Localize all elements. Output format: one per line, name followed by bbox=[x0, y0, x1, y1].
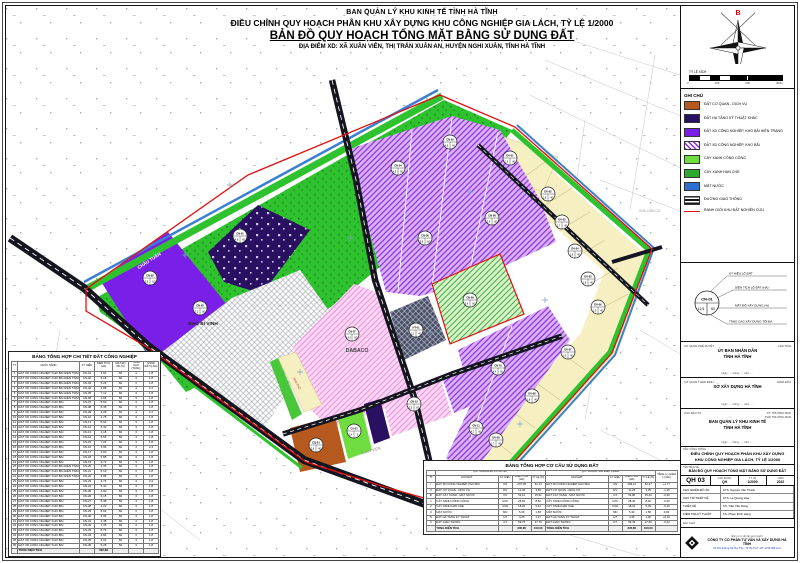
map-label: DABACO bbox=[346, 348, 369, 354]
table-row: 30ĐẤT XD CÔNG NGHIỆP, KHO BÃICN-305,0560… bbox=[12, 514, 159, 519]
lot-circle: CN-054,960 bbox=[443, 135, 457, 149]
lot-circle: CN-106,460 bbox=[491, 361, 505, 375]
staff-rows: CHỦ NHIỆM ĐỒ ÁNKTS. Nguyễn Văn Thành CHỦ… bbox=[681, 486, 794, 519]
lot-circle: CN-046,560 bbox=[391, 161, 405, 175]
svg-text:DV-05: DV-05 bbox=[584, 274, 592, 278]
svg-text:KÝ HIỆU LÔ ĐẤT: KÝ HIỆU LÔ ĐẤT bbox=[729, 271, 753, 276]
legend-items: ĐẤT CƠ QUAN - DỊCH VỤĐẤT HẠ TẦNG KỸ THUẬ… bbox=[684, 101, 791, 214]
lot-circle: DV-081,840 bbox=[525, 389, 539, 403]
table-row: 31ĐẤT XD CÔNG NGHIỆP, KHO BÃICN-314,4860… bbox=[12, 519, 159, 524]
table-row: 15ĐẤT XD CÔNG NGHIỆP, KHO BÃICN-157,2460… bbox=[12, 440, 159, 445]
table-row: 24ĐẤT XD CÔNG NGHIỆP, KHO BÃICN-245,4260… bbox=[12, 485, 159, 490]
location-line: ĐỊA ĐIỂM XD: XÃ XUÂN VIÊN, THỊ TRẤN XUÂN… bbox=[166, 44, 678, 50]
table-row: 9ĐẤT XD CÔNG NGHIỆP, KHO BÃICN-093,28604… bbox=[12, 411, 159, 416]
lot-circle: CN-065,860 bbox=[418, 231, 432, 245]
lot-circle: DV-091,740 bbox=[489, 433, 503, 447]
table-header-row: TTCHỨC NĂNG KÝ HIỆUDIỆN TÍCH (HA) MẬT ĐỘ… bbox=[12, 362, 159, 372]
lot-circle: DV-051,640 bbox=[581, 272, 595, 286]
svg-text:CN-04: CN-04 bbox=[394, 163, 402, 167]
lot-circle: DV-021,840 bbox=[541, 187, 555, 201]
lot-circle: CQ-012,840 bbox=[309, 438, 323, 452]
svg-text:CN-09: CN-09 bbox=[466, 295, 474, 299]
table-row: 8ĐẤT XD CÔNG NGHIỆP, KHO BÃICN-086,45603… bbox=[12, 406, 159, 411]
table-row: 27ĐẤT XD CÔNG NGHIỆP, KHO BÃICN-275,3860… bbox=[12, 499, 159, 504]
table-row: 7ĐẤT XD CÔNG NGHIỆP, KHO BÃICN-075,60603… bbox=[12, 401, 159, 406]
lot-circle: CN-025,660 bbox=[143, 271, 157, 285]
svg-text:CN-08: CN-08 bbox=[488, 213, 496, 217]
legend-swatch-icon bbox=[684, 128, 700, 137]
svg-text:DV-01: DV-01 bbox=[506, 153, 514, 157]
page-title: BẢN ĐỒ QUY HOẠCH TỔNG MẶT BẰNG SỬ DỤNG Đ… bbox=[166, 30, 678, 42]
svg-text:DV-02: DV-02 bbox=[544, 189, 552, 193]
svg-text:DV-04: DV-04 bbox=[571, 246, 579, 250]
svg-text:CN-07: CN-07 bbox=[348, 329, 356, 333]
legend-panel: GHI CHÚ ĐẤT CƠ QUAN - DỊCH VỤĐẤT HẠ TẦNG… bbox=[681, 89, 794, 264]
org-title: BAN QUẢN LÝ KHU KINH TẾ TỈNH HÀ TĨNH bbox=[166, 9, 678, 16]
svg-text:14,6: 14,6 bbox=[346, 337, 351, 340]
table-row: TỔNG DIỆN TÍCH192,83 bbox=[12, 549, 159, 554]
drawing-name: BẢN ĐỒ QUY HOẠCH TỔNG MẶT BẰNG SỬ DỤNG Đ… bbox=[681, 469, 794, 476]
legend-swatch-icon bbox=[684, 114, 700, 123]
lot-symbol-diagram: CN-01 12,5 60 KÝ HIỆU LÔ ĐẤT DIỆN TÍCH L… bbox=[681, 263, 791, 339]
svg-text:DV-06: DV-06 bbox=[594, 302, 602, 306]
company-logo-icon bbox=[684, 535, 700, 551]
company-name: CÔNG TY CỔ PHẦN TƯ VẤN VÀ XÂY DỰNG HÀ TĨ… bbox=[703, 538, 791, 546]
lot-circle: DV-041,840 bbox=[568, 244, 582, 258]
table-row: 17ĐẤT XD CÔNG NGHIỆP, KHO BÃICN-174,6060… bbox=[12, 450, 159, 455]
legend-swatch-icon bbox=[684, 211, 700, 212]
svg-text:CN-06: CN-06 bbox=[421, 233, 429, 237]
svg-text:B: B bbox=[735, 10, 740, 17]
lot-circle: CN-083,660 bbox=[485, 211, 499, 225]
approval-block-soxd: CƠ QUAN THẨM ĐỊNHGIÁM ĐỐC SỞ XÂY DỰNG HÀ… bbox=[681, 378, 794, 410]
legend-item: CÂY XANH HẠN CHẾ bbox=[684, 169, 791, 178]
svg-text:DV-07: DV-07 bbox=[564, 347, 572, 351]
table-row: 20ĐẤT XD CÔNG NGHIỆP, KHO BÃI HIỆN TRẠNG… bbox=[12, 465, 159, 470]
legend-item: ĐƯỜNG GIAO THÔNG bbox=[684, 196, 791, 205]
project-title: ĐIỀU CHỈNH QUY HOẠCH PHÂN KHU XÂY DỰNG K… bbox=[166, 18, 678, 28]
svg-text:DIỆN TÍCH LÔ ĐẤT (HA): DIỆN TÍCH LÔ ĐẤT (HA) bbox=[735, 285, 769, 290]
company-address: Số 181 đường Hà Huy Tập - TP Hà Tĩnh - Đ… bbox=[703, 547, 791, 550]
legend-swatch-icon bbox=[684, 155, 700, 164]
lot-circle: CN-095,460 bbox=[463, 293, 477, 307]
lot-circle: CN-114,260 bbox=[469, 421, 483, 435]
table-row: 10ĐẤT XD CÔNG NGHIỆP, KHO BÃICN-104,7560… bbox=[12, 416, 159, 421]
table-row: 16ĐẤT XD CÔNG NGHIỆP, KHO BÃICN-163,9660… bbox=[12, 445, 159, 450]
legend-swatch-icon bbox=[684, 141, 700, 150]
legend-item: ĐẤT XD CÔNG NGHIỆP, KHO BÃI HIỆN TRẠNG bbox=[684, 128, 791, 137]
legend-swatch-icon bbox=[684, 101, 700, 110]
industrial-detail-table: BẢNG TỔNG HỢP CHI TIẾT ĐẤT CÔNG NGHIỆP T… bbox=[8, 351, 161, 557]
note-cell: GHI CHÚ: bbox=[681, 519, 794, 527]
table-row: 21ĐẤT XD CÔNG NGHIỆP, KHO BÃI HIỆN TRẠNG… bbox=[12, 470, 159, 475]
compass-panel: B TỶ LỆ XÍCH 0100 200400m bbox=[681, 6, 794, 89]
lot-circle: CN-014,860 bbox=[233, 229, 247, 243]
legend-title: GHI CHÚ bbox=[684, 93, 791, 98]
table-title: BẢNG TỔNG HỢP CHI TIẾT ĐẤT CÔNG NGHIỆP bbox=[11, 354, 158, 359]
table-row: 1ĐẤT XD CÔNG NGHIỆP, KHO BÃI HIỆN TRẠNGC… bbox=[12, 371, 159, 376]
lot-circle: DV-031,740 bbox=[555, 215, 569, 229]
svg-text:DV-09: DV-09 bbox=[492, 435, 500, 439]
approval-block-ubnd: CƠ QUAN PHÊ DUYỆTCHỦ TỊCH ỦY BAN NHÂN DÂ… bbox=[681, 342, 794, 377]
table-row: 13ĐẤT XD CÔNG NGHIỆP, KHO BÃICN-134,1860… bbox=[12, 430, 159, 435]
svg-text:CN-05: CN-05 bbox=[446, 137, 454, 141]
legend-swatch-icon bbox=[684, 182, 700, 191]
table-row: 22ĐẤT XD CÔNG NGHIỆP, KHO BÃI HIỆN TRẠNG… bbox=[12, 475, 159, 480]
legend-item-label: ĐẤT HẠ TẦNG KỸ THUẬT KHÁC bbox=[704, 117, 758, 121]
scale-ticks: 0100 200400m bbox=[687, 81, 783, 85]
table-row: 2ĐẤT XD CÔNG NGHIỆP, KHO BÃI HIỆN TRẠNGC… bbox=[12, 376, 159, 381]
legend-item-label: CÂY XANH HẠN CHẾ bbox=[704, 171, 739, 175]
svg-text:12,5: 12,5 bbox=[698, 307, 705, 311]
lot-circle: DV-011,640 bbox=[503, 151, 517, 165]
table-row: 34ĐẤT XD CÔNG NGHIỆP, KHO BÃICN-344,8460… bbox=[12, 534, 159, 539]
lot-circle: DV-071,940 bbox=[561, 345, 575, 359]
drawing-number: QH 03 bbox=[681, 476, 711, 485]
table-row: 25ĐẤT XD CÔNG NGHIỆP, KHO BÃICN-254,9060… bbox=[12, 490, 159, 495]
table-row: 14ĐẤT XD CÔNG NGHIỆP, KHO BÃICN-145,5560… bbox=[12, 435, 159, 440]
project-name-2: KHU CÔNG NGHIỆP GIA LÁCH, TỶ LỆ 1/2000 bbox=[681, 457, 794, 463]
svg-text:CN-02: CN-02 bbox=[146, 273, 154, 277]
legend-item: ĐẤT XD CÔNG NGHIỆP, KHO BÃI bbox=[684, 141, 791, 150]
legend-item: MẶT NƯỚC bbox=[684, 182, 791, 191]
table-row: 33ĐẤT XD CÔNG NGHIỆP, KHO BÃICN-335,7660… bbox=[12, 529, 159, 534]
svg-text:CN-01: CN-01 bbox=[236, 231, 244, 235]
lot-circle: CX-011,45 bbox=[347, 424, 361, 438]
lot-circle: CN-123,560 bbox=[407, 397, 421, 411]
table-row: 18ĐẤT XD CÔNG NGHIỆP, KHO BÃICN-185,8560… bbox=[12, 455, 159, 460]
scale-bar-label: TỶ LỆ XÍCH bbox=[689, 70, 794, 74]
compass-rose-icon: B bbox=[681, 6, 791, 64]
lot-circle: CN-0714,660 bbox=[345, 327, 359, 341]
svg-text:CN-10: CN-10 bbox=[494, 363, 502, 367]
legend-item-label: ĐẤT CƠ QUAN - DỊCH VỤ bbox=[704, 103, 747, 107]
title-block: TÊN CÔNG TRÌNH ĐIỀU CHỈNH QUY HOẠCH PHÂN… bbox=[681, 447, 794, 557]
svg-text:HT-01: HT-01 bbox=[412, 325, 420, 329]
landuse-structure-table: BẢNG TỔNG HỢP CƠ CẤU SỬ DỤNG ĐẤT QUY HOẠ… bbox=[423, 460, 681, 535]
title-column: B TỶ LỆ XÍCH 0100 200400m bbox=[680, 6, 794, 557]
legend-swatch-icon bbox=[684, 169, 700, 178]
table-row: 4ĐẤT XD CÔNG NGHIỆP, KHO BÃI HIỆN TRẠNGC… bbox=[12, 386, 159, 391]
legend-item: RANH GIỚI KHU ĐẤT NGHIÊN CỨU bbox=[684, 209, 791, 213]
lot-circle: HT-011,240 bbox=[409, 323, 423, 337]
legend-item: ĐẤT HẠ TẦNG KỸ THUẬT KHÁC bbox=[684, 114, 791, 123]
legend-swatch-icon bbox=[684, 196, 700, 205]
table-row: 11ĐẤT XD CÔNG NGHIỆP, KHO BÃICN-115,9260… bbox=[12, 421, 159, 426]
svg-text:TẦNG CAO XÂY DỰNG TỐI ĐA: TẦNG CAO XÂY DỰNG TỐI ĐA bbox=[729, 319, 772, 324]
table-row: 19ĐẤT XD CÔNG NGHIỆP, KHO BÃICN-196,7260… bbox=[12, 460, 159, 465]
table-row: 28ĐẤT XD CÔNG NGHIỆP, KHO BÃICN-284,2260… bbox=[12, 504, 159, 509]
approval-block-investor: CHỦ ĐẦU TƯKT. TRƯỞNG BAN PHÓ TRƯỞNG BAN … bbox=[681, 409, 794, 446]
svg-text:CN-01: CN-01 bbox=[701, 297, 713, 302]
table-row: 36ĐẤT XD CÔNG NGHIỆP, KHO BÃICN-365,2860… bbox=[12, 544, 159, 549]
lot-symbol-panel: CN-01 12,5 60 KÝ HIỆU LÔ ĐẤT DIỆN TÍCH L… bbox=[681, 263, 794, 342]
sheet-header: BAN QUẢN LÝ KHU KINH TẾ TỈNH HÀ TĨNH ĐIỀ… bbox=[166, 9, 678, 50]
legend-item-label: ĐẤT XD CÔNG NGHIỆP, KHO BÃI bbox=[704, 144, 760, 148]
legend-item-label: MẶT NƯỚC bbox=[704, 185, 724, 189]
svg-text:DV-03: DV-03 bbox=[558, 217, 566, 221]
svg-text:60: 60 bbox=[711, 307, 715, 311]
lot-circle: CN-037,260 bbox=[193, 301, 207, 315]
svg-text:CX-01: CX-01 bbox=[350, 426, 358, 430]
legend-item-label: ĐẤT XD CÔNG NGHIỆP, KHO BÃI HIỆN TRẠNG bbox=[704, 130, 783, 134]
table-title: BẢNG TỔNG HỢP CƠ CẤU SỬ DỤNG ĐẤT bbox=[426, 463, 678, 468]
legend-item: CÂY XANH CÔNG CỘNG bbox=[684, 155, 791, 164]
legend-item-label: ĐƯỜNG GIAO THÔNG bbox=[704, 198, 742, 202]
svg-text:CN-03: CN-03 bbox=[196, 303, 204, 307]
table-row: 29ĐẤT XD CÔNG NGHIỆP, KHO BÃICN-296,6460… bbox=[12, 509, 159, 514]
table-row: 26ĐẤT XD CÔNG NGHIỆP, KHO BÃICN-266,1560… bbox=[12, 494, 159, 499]
map-label: KHU DÂN CƯ bbox=[639, 209, 661, 213]
drawing-number-row: QH 03 GIAI ĐOẠNQH TỶ LỆ1/2000 NĂM2022 bbox=[681, 476, 794, 486]
table-row: 5ĐẤT XD CÔNG NGHIỆP, KHO BÃI HIỆN TRẠNGC… bbox=[12, 391, 159, 396]
table-row: 32ĐẤT XD CÔNG NGHIỆP, KHO BÃICN-327,3560… bbox=[12, 524, 159, 529]
table-row: 12ĐẤT XD CÔNG NGHIỆP, KHO BÃICN-126,3060… bbox=[12, 426, 159, 431]
table-row: 23ĐẤT XD CÔNG NGHIỆP, KHO BÃICN-233,7460… bbox=[12, 480, 159, 485]
table-row: 3ĐẤT XD CÔNG NGHIỆP, KHO BÃI HIỆN TRẠNGC… bbox=[12, 381, 159, 386]
table-header-row: TTLOẠI ĐẤT KÝ HIỆUDIỆN TÍCH (HA) TỶ LỆ (… bbox=[427, 475, 678, 482]
svg-text:CN-12: CN-12 bbox=[410, 399, 418, 403]
svg-text:MẬT ĐỘ XÂY DỰNG (%): MẬT ĐỘ XÂY DỰNG (%) bbox=[735, 303, 769, 308]
company-block: (Đơn vị tư vấn lập quy hoạch) CÔNG TY CỔ… bbox=[681, 527, 794, 557]
legend-item: ĐẤT CƠ QUAN - DỊCH VỤ bbox=[684, 101, 791, 110]
table-row: 6ĐẤT XD CÔNG NGHIỆP, KHO BÃI HIỆN TRẠNGC… bbox=[12, 396, 159, 401]
svg-text:CQ-01: CQ-01 bbox=[312, 440, 320, 444]
svg-text:DV-08: DV-08 bbox=[528, 391, 536, 395]
table-row: TỔNG DIỆN TÍCH335,85100,00TỔNG DIỆN TÍCH… bbox=[427, 526, 678, 531]
legend-item-label: CÂY XANH CÔNG CỘNG bbox=[704, 157, 746, 161]
svg-text:CN-11: CN-11 bbox=[472, 423, 480, 427]
drawing-sheet: CN-025,660CN-037,260CN-014,860CN-0714,66… bbox=[0, 0, 800, 563]
lot-circle: DV-061,540 bbox=[591, 300, 605, 314]
table-row: 35ĐẤT XD CÔNG NGHIỆP, KHO BÃICN-356,0260… bbox=[12, 539, 159, 544]
legend-item-label: RANH GIỚI KHU ĐẤT NGHIÊN CỨU bbox=[704, 209, 764, 213]
